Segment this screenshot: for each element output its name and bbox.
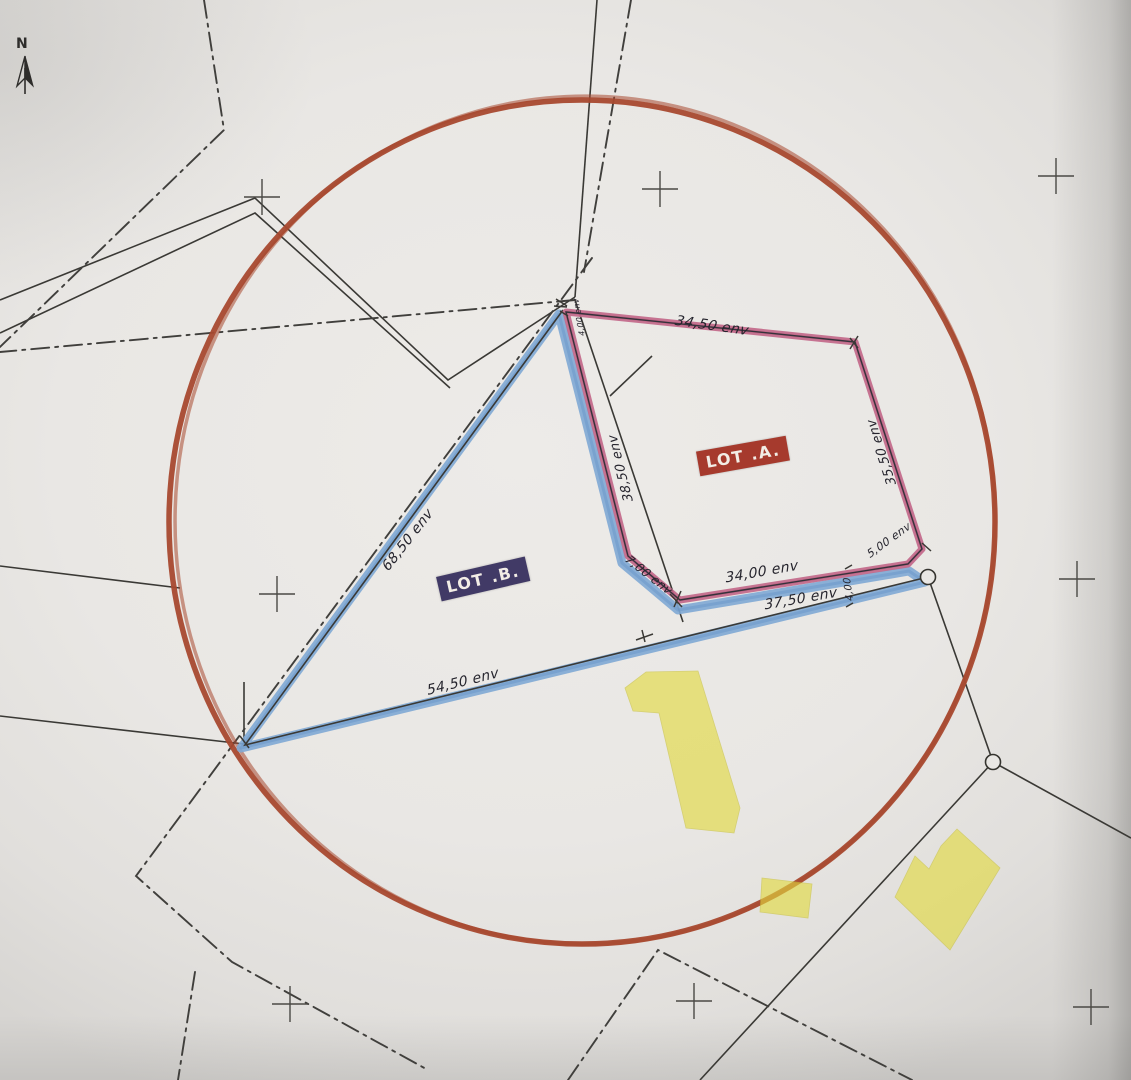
boundary-west-faint	[0, 566, 180, 588]
survey-cross	[1073, 989, 1109, 1025]
boundary-west	[0, 716, 244, 744]
survey-cross	[1059, 561, 1095, 597]
axis-north-upper	[584, 0, 631, 272]
boundary-southeast	[993, 762, 1131, 838]
survey-cross	[272, 986, 308, 1022]
north-arrow-left	[17, 56, 25, 86]
lot-b-ink-line	[245, 310, 928, 745]
north-label: N	[16, 38, 44, 50]
parcel-tick-line	[610, 356, 652, 396]
tick-mark	[636, 630, 653, 642]
road-edge-lower	[0, 213, 450, 388]
axis-road-west	[0, 300, 575, 352]
survey-cross	[676, 983, 712, 1019]
survey-plan-photo: N 34,50 env35,50 env38,50 env7,00 env34,…	[0, 0, 1131, 1080]
axis-southeast	[568, 950, 912, 1080]
survey-cross	[259, 576, 295, 612]
axis-diagonal	[136, 258, 592, 1070]
highlighted-building-1	[625, 671, 740, 833]
highlighted-building-3	[895, 829, 1000, 950]
survey-cross	[244, 179, 280, 215]
north-arrow-icon	[8, 50, 44, 96]
survey-point-circle	[986, 755, 1001, 770]
boundary-north	[575, 0, 597, 297]
highlighted-building-2	[760, 878, 812, 918]
survey-point-circle	[921, 570, 936, 585]
north-arrow-right	[25, 56, 33, 86]
survey-cross	[642, 171, 678, 207]
north-arrow: N	[8, 38, 44, 98]
plan-drawing	[0, 0, 1131, 1080]
survey-cross	[1038, 158, 1074, 194]
axis-branch	[178, 972, 195, 1080]
